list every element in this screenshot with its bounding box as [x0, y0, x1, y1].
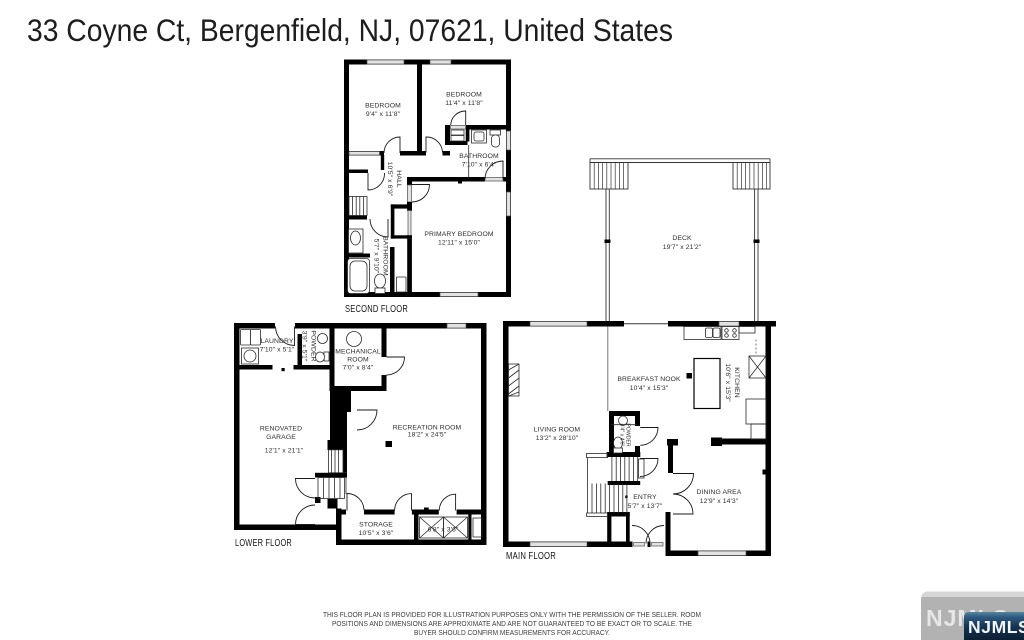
svg-text:THIS FLOOR PLAN IS PROVIDED FO: THIS FLOOR PLAN IS PROVIDED FOR ILLUSTRA… — [323, 610, 701, 619]
svg-text:LOWER FLOOR: LOWER FLOOR — [235, 537, 292, 549]
svg-text:13'2" x 28'10": 13'2" x 28'10" — [536, 435, 579, 442]
svg-text:ROOM: ROOM — [347, 357, 369, 364]
svg-text:10'5" x 3'6": 10'5" x 3'6" — [359, 530, 394, 537]
svg-text:STORAGE: STORAGE — [359, 522, 393, 529]
svg-text:7'10" x 6'4": 7'10" x 6'4" — [462, 162, 497, 169]
svg-text:BEDROOM: BEDROOM — [446, 92, 482, 99]
svg-text:33 Coyne Ct, Bergenfield, NJ,: 33 Coyne Ct, Bergenfield, NJ, 07621, Uni… — [27, 12, 673, 48]
svg-text:10'5" x 6'9": 10'5" x 6'9" — [386, 162, 393, 197]
svg-text:12'9" x 14'3": 12'9" x 14'3" — [700, 498, 739, 505]
svg-text:9'4" x 11'8": 9'4" x 11'8" — [366, 111, 401, 118]
svg-text:NJMLS: NJMLS — [968, 617, 1024, 637]
svg-text:KITCHEN: KITCHEN — [733, 367, 740, 398]
svg-text:12'11" x 15'0": 12'11" x 15'0" — [438, 240, 480, 247]
svg-text:18'2" x 24'5": 18'2" x 24'5" — [408, 432, 447, 439]
svg-text:POSITIONS AND DIMENSIONS ARE A: POSITIONS AND DIMENSIONS ARE APPROXIMATE… — [332, 619, 692, 628]
svg-text:DECK: DECK — [672, 235, 692, 242]
svg-text:BEDROOM: BEDROOM — [365, 103, 401, 110]
svg-text:5'7" x 13'7": 5'7" x 13'7" — [628, 503, 663, 510]
svg-text:DINING AREA: DINING AREA — [697, 489, 742, 496]
svg-text:RECREATION ROOM: RECREATION ROOM — [393, 425, 462, 432]
svg-text:BREAKFAST NOOK: BREAKFAST NOOK — [617, 376, 681, 383]
svg-text:RENOVATED: RENOVATED — [260, 426, 302, 433]
svg-text:7'10" x 5'1": 7'10" x 5'1" — [260, 347, 295, 354]
svg-text:7'0" x 8'4": 7'0" x 8'4" — [343, 365, 374, 372]
svg-text:BATHROOM: BATHROOM — [382, 236, 389, 276]
svg-text:POWDER: POWDER — [310, 330, 317, 361]
svg-text:MECHANICAL: MECHANICAL — [335, 349, 381, 356]
svg-text:LIVING ROOM: LIVING ROOM — [534, 427, 581, 434]
svg-text:LAUNDRY: LAUNDRY — [260, 338, 293, 345]
svg-text:5'7" x 9'10": 5'7" x 9'10" — [373, 239, 380, 274]
svg-text:10'4" x 15'3": 10'4" x 15'3" — [630, 385, 669, 392]
svg-text:HALL: HALL — [395, 170, 402, 188]
svg-text:BUYER SHOULD CONFIRM MEASUREME: BUYER SHOULD CONFIRM MEASUREMENTS FOR AC… — [414, 628, 610, 637]
svg-text:BATHROOM: BATHROOM — [459, 153, 499, 160]
svg-text:PRIMARY BEDROOM: PRIMARY BEDROOM — [424, 231, 493, 238]
svg-text:19'7" x 21'2": 19'7" x 21'2" — [663, 244, 702, 251]
svg-text:SECOND FLOOR: SECOND FLOOR — [345, 303, 408, 315]
svg-text:GARAGE: GARAGE — [266, 434, 296, 441]
svg-text:3'9" x 5'1": 3'9" x 5'1" — [301, 331, 308, 362]
svg-text:11'4" x 11'8": 11'4" x 11'8" — [445, 100, 483, 107]
svg-text:MAIN FLOOR: MAIN FLOOR — [506, 550, 556, 562]
svg-text:ENTRY: ENTRY — [633, 494, 657, 501]
svg-text:4'4" x 4'6": 4'4" x 4'6" — [619, 424, 625, 447]
svg-text:12'1" x 21'1": 12'1" x 21'1" — [265, 448, 304, 455]
svg-text:6'8" x 3'6": 6'8" x 3'6" — [428, 527, 459, 534]
svg-text:10'6" x 15'3": 10'6" x 15'3" — [724, 363, 731, 402]
